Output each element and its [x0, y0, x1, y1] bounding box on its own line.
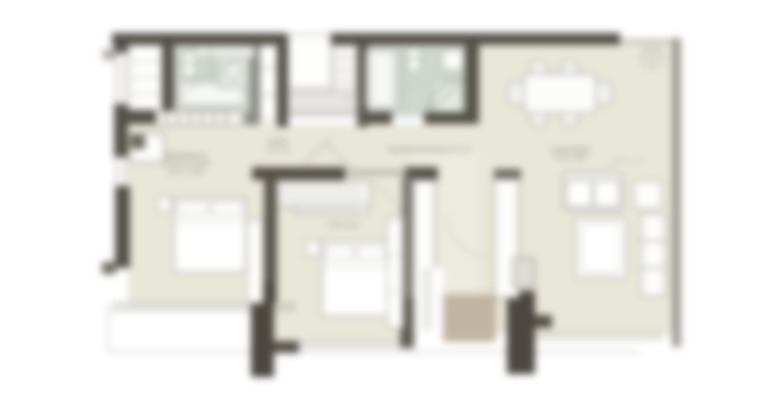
svg-text:BEDROOM 02: BEDROOM 02 [165, 153, 208, 160]
svg-text:5.10 X 3.50: 5.10 X 3.50 [555, 156, 586, 162]
svg-text:3.20 X 4.10: 3.20 X 4.10 [328, 223, 359, 229]
svg-text:3.05 M X 4.20 M: 3.05 M X 4.20 M [162, 161, 210, 168]
svg-text:12'0" X 13'9": 12'0" X 13'9" [168, 169, 205, 176]
svg-text:1.5 X 2.1: 1.5 X 2.1 [266, 148, 291, 154]
svg-text:MASTER BEDROOM 3.6 X 4.2: MASTER BEDROOM 3.6 X 4.2 [388, 148, 472, 154]
svg-text:LIVING ROOM: LIVING ROOM [550, 148, 590, 154]
svg-text:FOYER: FOYER [268, 140, 289, 146]
